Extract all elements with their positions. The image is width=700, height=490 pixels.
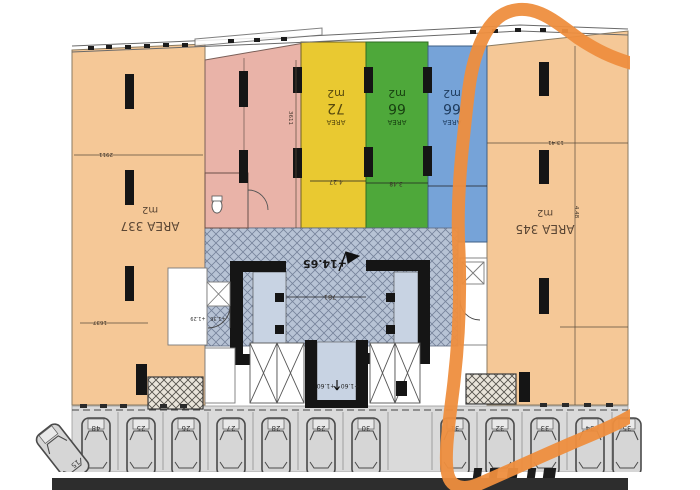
elevator-shaft xyxy=(305,340,368,408)
stair-level-a: +1.29 xyxy=(190,315,205,321)
area-word: AREA xyxy=(387,118,406,126)
area-value: 72 xyxy=(327,100,345,116)
bottom-bar xyxy=(52,478,628,490)
area-unit: m2 xyxy=(443,87,461,100)
stall-number: 48 xyxy=(92,424,101,432)
area-unit: m2 xyxy=(388,87,406,100)
dim: 1637 xyxy=(93,319,107,325)
stall-number: 33 xyxy=(541,424,550,432)
stall-number: 26 xyxy=(181,424,190,432)
area-word: AREA xyxy=(326,118,345,126)
stall-number: 32 xyxy=(496,424,505,432)
dim: 3611 xyxy=(287,111,293,125)
stall-number: 28 xyxy=(272,424,281,432)
stall-number: 25 xyxy=(137,424,146,432)
dim: 3.48 xyxy=(389,180,403,187)
stair-level-b: +1.36 xyxy=(210,315,225,321)
lift-level-b: +1.60 xyxy=(341,382,360,389)
dim: 4.27 xyxy=(329,178,343,185)
area-value: AREA 345 xyxy=(515,222,574,236)
area-value: 66 xyxy=(388,100,406,116)
area-label-green: AREA 66 m2 xyxy=(387,87,406,126)
dim: 13.41 xyxy=(548,139,564,145)
area-unit: m2 xyxy=(327,87,345,100)
area-value: 66 xyxy=(443,100,461,116)
floorplan-drawing: 48 25 26 27 28 29 30 31 32 33 34 35 15 xyxy=(0,0,700,490)
lift-level-a: +1.60 xyxy=(317,382,336,389)
area-unit: m2 xyxy=(142,204,158,215)
area-value: AREA 337 xyxy=(120,219,179,233)
dim: 781 xyxy=(324,293,336,301)
area-label-yellow: AREA 72 m2 xyxy=(326,87,345,126)
stall-number: 30 xyxy=(362,424,371,432)
dim: 2911 xyxy=(99,151,113,157)
area-label-blue: AREA 66 m2 xyxy=(442,87,461,126)
unit-yellow xyxy=(301,42,366,228)
bottom-gap xyxy=(0,472,700,478)
building-right-wing xyxy=(487,31,628,405)
dim: 4.48 xyxy=(573,206,579,219)
floorplan-screenshot: 48 25 26 27 28 29 30 31 32 33 34 35 15 xyxy=(0,0,700,490)
stall-number: 27 xyxy=(227,424,236,432)
unit-green xyxy=(366,42,428,228)
area-unit: m2 xyxy=(537,207,553,218)
stall-number: 29 xyxy=(317,424,326,432)
